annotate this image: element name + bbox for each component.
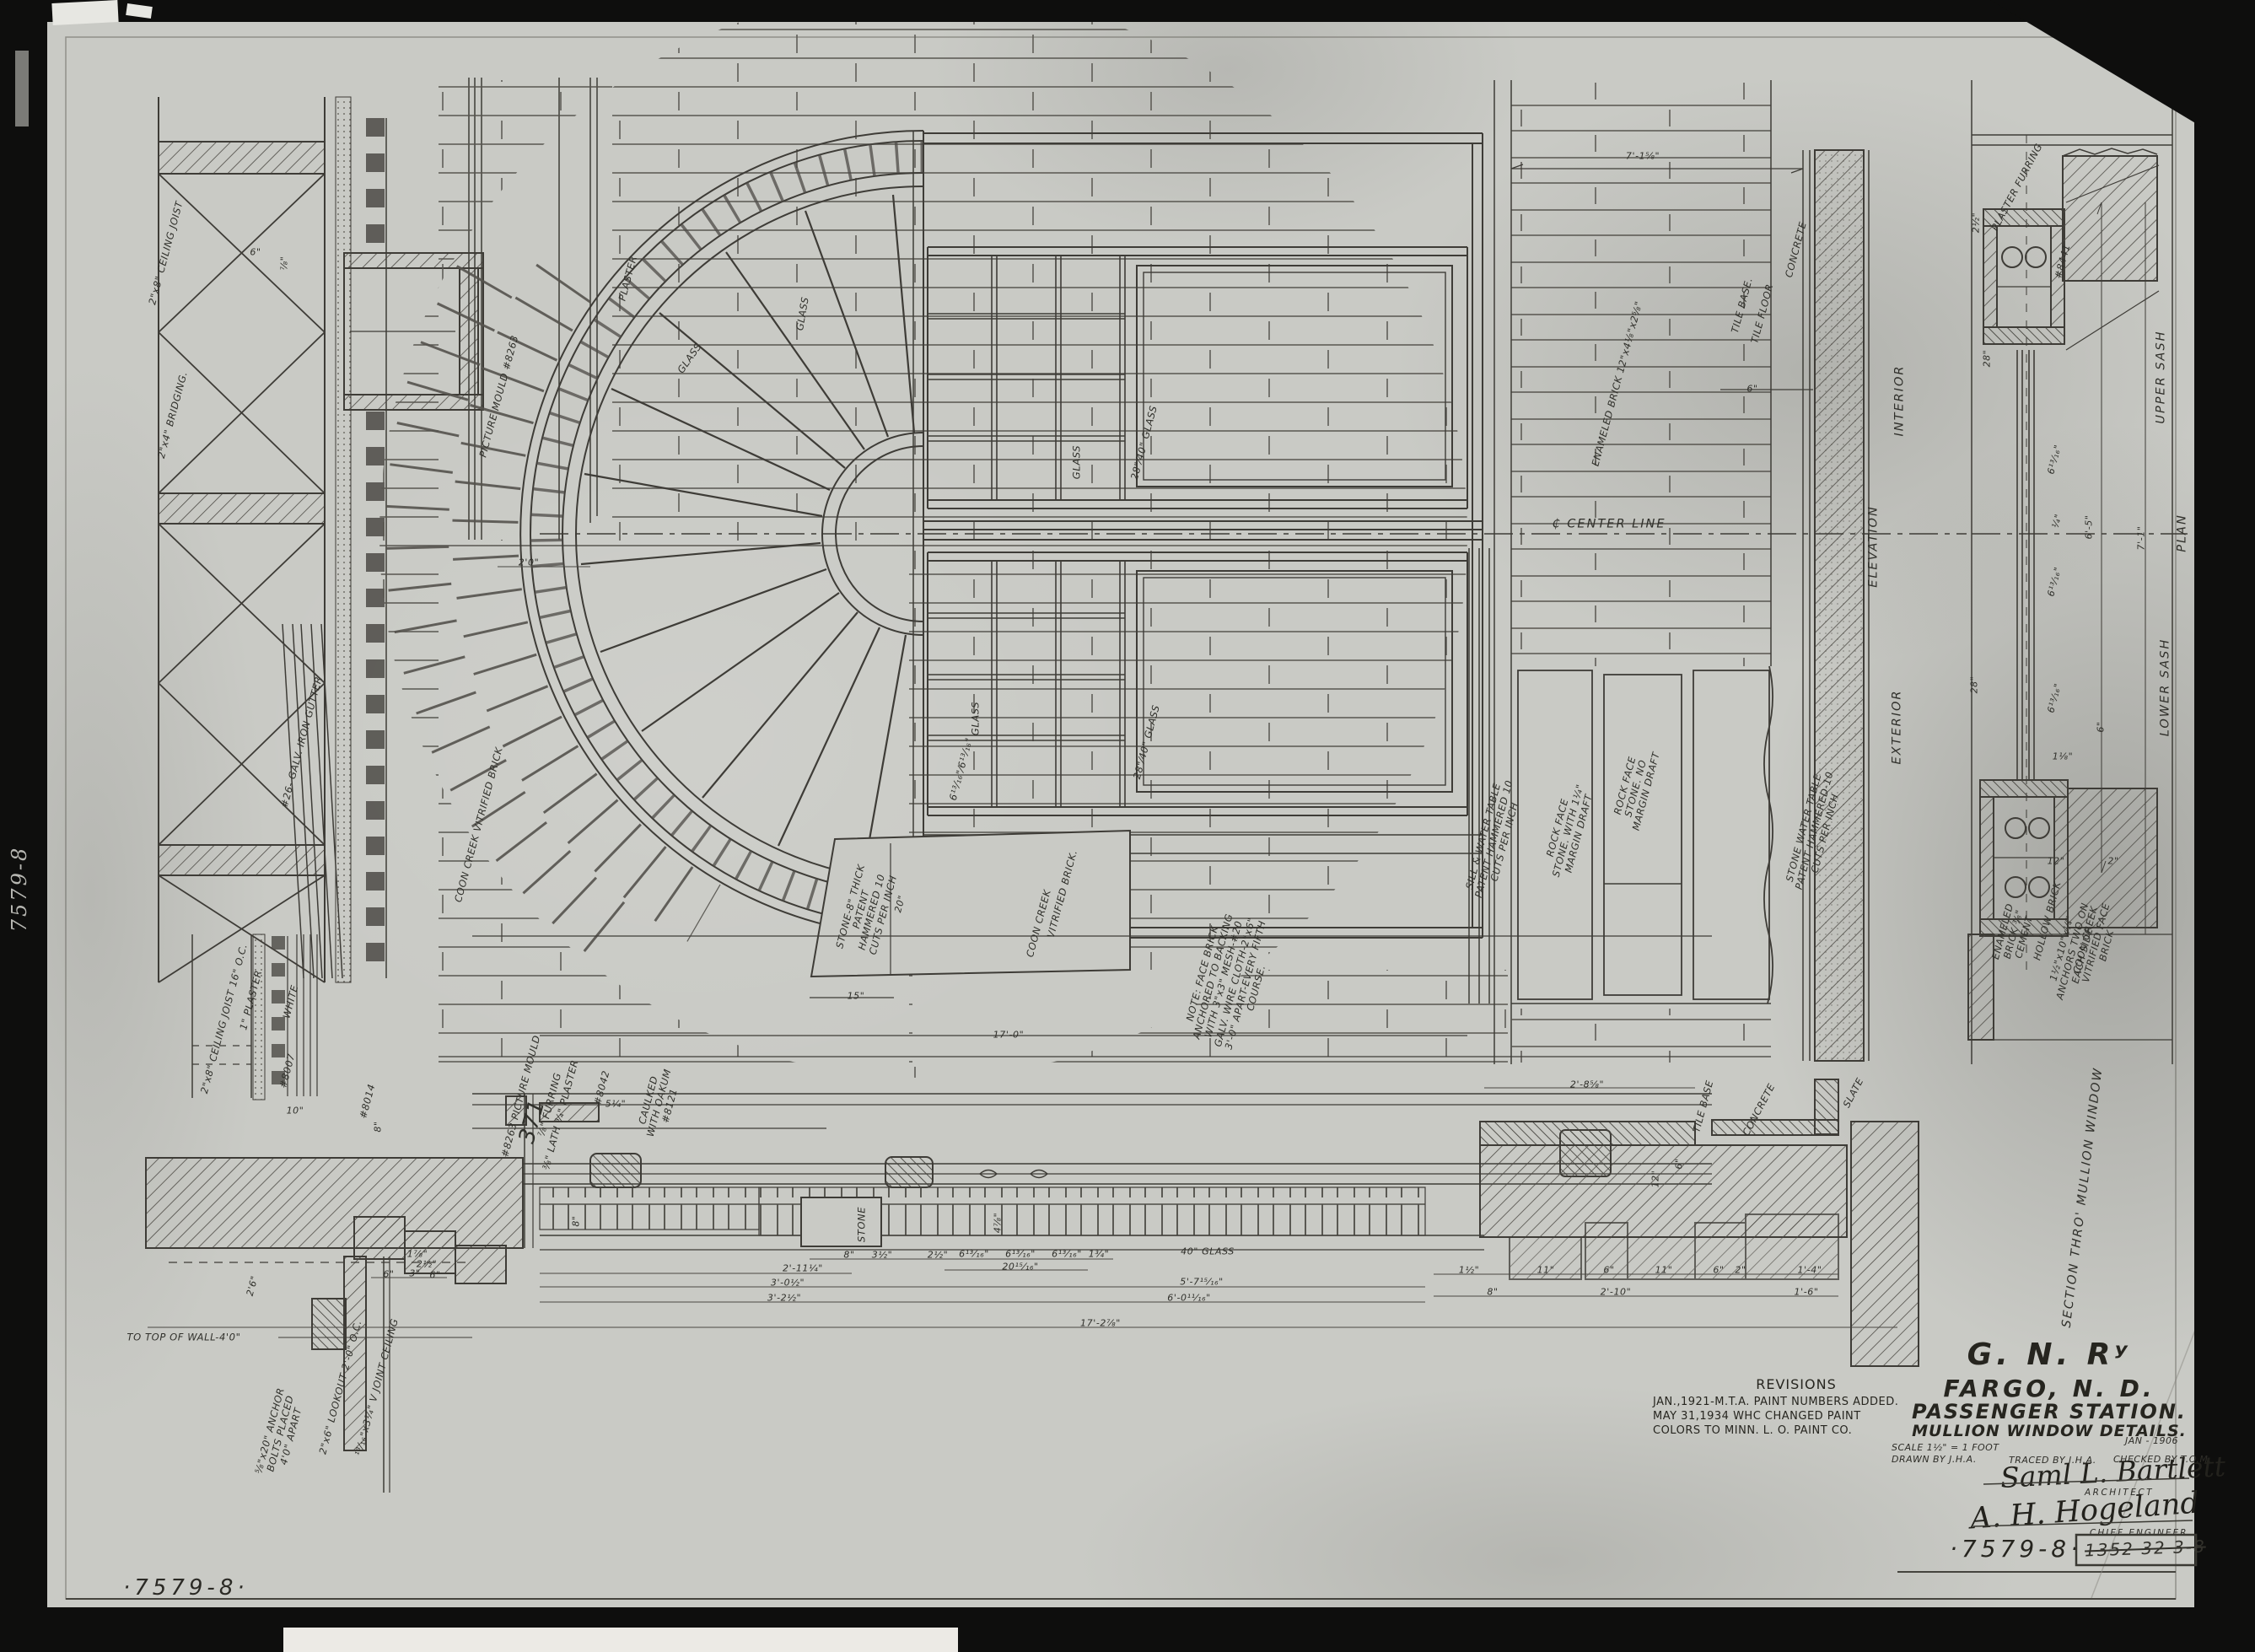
dimension-label: 15" <box>848 992 865 1003</box>
annotation-label: ₵ CENTER LINE <box>1552 518 1666 532</box>
railway-name: G. N. Rʸ <box>1914 1337 2184 1372</box>
annotation-label: SECTION THRO' MULLION WINDOW <box>2060 1067 2106 1329</box>
dimension-label: 6¹³⁄₁₆" <box>2046 566 2064 598</box>
dimension-label: 11" <box>1655 1266 1673 1277</box>
dimension-label: 1'-4" <box>1797 1266 1822 1277</box>
annotation-label: ENAMELED BRICK 12"x4⅛"x2⅝" <box>1590 300 1644 468</box>
annotation-label: COON CREEK VITRIFIED BRICK <box>453 746 505 904</box>
corner-drawing-number: ·7579-8· <box>123 1575 249 1601</box>
dimension-label: 1¾" <box>1089 1250 1110 1261</box>
annotation-label: CAULKED WITH OAKUM #8121 <box>633 1060 686 1146</box>
scale-note: SCALE 1½" = 1 FOOT <box>1892 1442 1999 1453</box>
dimension-label: 8" <box>1487 1288 1498 1299</box>
dimension-label: 3'-0½" <box>771 1278 805 1289</box>
annotation-label: 2"x4" BRIDGING. <box>156 370 190 460</box>
annotation-label: SLATE <box>1841 1076 1866 1110</box>
annotation-label: 28"⁄40" GLASS <box>1132 704 1162 781</box>
drawing-date: JAN - 1906 <box>2125 1435 2178 1446</box>
annotation-label: NOTE: FACE BRICK ANCHORED TO BACKING WIT… <box>1179 905 1279 1057</box>
dimension-label: ⅞" <box>280 256 291 271</box>
annotation-label: STONE WATER TABLE PATENT HAMMERED-10 CUT… <box>1782 765 1847 896</box>
dimension-label: 3'-2½" <box>767 1294 801 1305</box>
dimension-label: 12" <box>2048 857 2065 868</box>
annotation-label: ⅝"x20" ANCHOR BOLTS PLACED 4'0" APART <box>253 1385 309 1483</box>
annotation-label: PLAN <box>2176 514 2190 552</box>
annotation-label: PICTURE MOULD #8263 <box>477 334 520 459</box>
dimension-label: 40" GLASS <box>1181 1247 1235 1258</box>
dimension-label: 2'-11¼" <box>783 1264 823 1275</box>
dimension-label: 6" <box>1746 385 1757 396</box>
annotation-label: 6¹³⁄₁₆"⁄6¹³⁄₁₆" <box>948 736 976 802</box>
annotation-label: #8007 <box>277 1052 298 1090</box>
dimension-label: 2½" <box>1972 213 1983 234</box>
dimension-label: 1'-6" <box>1794 1288 1818 1299</box>
dimension-label: 8" <box>843 1251 854 1262</box>
annotation-label: EXTERIOR <box>1891 690 1905 765</box>
drawing-number: ·7579-8· <box>1950 1535 2082 1563</box>
dimension-label: 6" <box>383 1270 394 1281</box>
dimension-label: 17'-0" <box>993 1030 1025 1041</box>
revision-entry: JAN.,1921-M.T.A. PAINT NUMBERS ADDED. <box>1653 1396 1940 1410</box>
annotation-label: ¹³⁄₁₆"x3¼" V JOINT CEILING <box>353 1317 401 1457</box>
dimension-label: 6'-0¹¹⁄₁₆" <box>1167 1294 1211 1305</box>
dimension-label: 1⅞" <box>407 1250 428 1261</box>
annotation-label: LOWER SASH <box>2159 638 2173 736</box>
dimension-label: 4⅞" <box>993 1213 1004 1234</box>
annotation-label: WHITE <box>281 984 300 1020</box>
dimension-label: 2'-10" <box>1601 1288 1632 1299</box>
annotation-label: #26- GALV. IRON GUTTER <box>279 675 325 810</box>
dimension-label: 28" <box>1970 676 1981 694</box>
dimension-label: 7'-1⅝" <box>1626 152 1660 163</box>
dimension-label: ¼" <box>2051 513 2065 530</box>
annotation-label: CONCRETE <box>1784 220 1809 278</box>
dimension-label: 2'0" <box>519 558 539 569</box>
dimension-label: 1⅛" <box>2053 752 2074 763</box>
dimension-label: 5¼" <box>605 1100 627 1111</box>
annotation-label: #8441 <box>2053 243 2073 280</box>
dimension-label: 6" <box>2096 721 2107 732</box>
annotation-label: TO TOP OF WALL-4'0" <box>127 1332 241 1343</box>
annotation-label: 2"x8" CEILING JOIST <box>147 200 186 306</box>
dimension-label: 12" <box>1651 1170 1662 1188</box>
revisions-heading: REVISIONS <box>1653 1376 1940 1392</box>
annotation-label: ROCK FACE STONE. NO MARGIN DRAFT <box>1606 735 1665 842</box>
dimension-label: 3" <box>409 1269 420 1280</box>
annotation-label: 1" PLASTER <box>238 969 265 1031</box>
annotation-label: SILL & WATER TABLE PATENT HAMMERED 10 CU… <box>1462 774 1527 903</box>
dimension-label: 17'-2⅞" <box>1080 1319 1121 1330</box>
dimension-label: 10" <box>287 1106 304 1117</box>
revision-entry: COLORS TO MINN. L. O. PAINT CO. <box>1653 1424 1940 1439</box>
annotation-label: TILE FLOOR <box>1749 283 1776 344</box>
annotation-label: GLASS <box>675 342 704 376</box>
dimension-label: 20¹⁵⁄₁₆" <box>1002 1262 1038 1273</box>
dimension-label: 6" <box>1603 1266 1614 1277</box>
annotation-label: STONE-8" THICK PATENT HAMMERED 10 CUTS P… <box>832 856 901 966</box>
dimension-label: 6¹³⁄₁₆" <box>2046 444 2064 476</box>
dimension-label: 2" <box>1735 1266 1746 1277</box>
revisions-block: REVISIONS JAN.,1921-M.T.A. PAINT NUMBERS… <box>1653 1376 1940 1439</box>
annotation-label: UPPER SASH <box>2155 330 2169 423</box>
dimension-label: 6¹³⁄₁₆" <box>959 1250 989 1261</box>
dimension-label: 6" <box>250 248 261 259</box>
dimension-label: 6" <box>1675 1158 1686 1169</box>
dimension-label: 2'-8⅝" <box>1570 1080 1604 1091</box>
annotation-label: GLASS <box>970 702 981 735</box>
dimension-label: 7'-1" <box>2137 525 2148 550</box>
annotation-label: PLASTER FURRING <box>1989 142 2045 233</box>
annotation-label: TILE BASE <box>1691 1079 1715 1134</box>
annotation-label: CONCRETE <box>1741 1082 1778 1138</box>
dimension-label: 28" <box>1983 350 1994 368</box>
annotation-label: 28"⁄40" GLASS <box>1129 405 1160 482</box>
dimension-label: 1½" <box>1459 1266 1480 1277</box>
dimension-label: 6" <box>1713 1266 1724 1277</box>
drawing-title: PASSENGER STATION. <box>1897 1400 2201 1423</box>
annotation-label: PLASTER <box>616 255 639 303</box>
dimension-label: 3½" <box>872 1251 893 1262</box>
dimension-label: 20" <box>893 894 908 913</box>
dimension-label: 6¹³⁄₁₆" <box>1005 1250 1036 1261</box>
blueprint-scan: { "title_block": { "railway": "G. N. Rʸ"… <box>0 0 2255 1652</box>
annotation-label: TILE BASE. <box>1730 277 1755 335</box>
revision-entry: MAY 31,1934 WHC CHANGED PAINT <box>1653 1410 1940 1424</box>
dimension-label: 6'-5" <box>2085 514 2096 539</box>
dimension-label: 2" <box>2107 857 2118 868</box>
annotation-label: INTERIOR <box>1893 365 1908 437</box>
dimension-label: 2½" <box>928 1251 949 1262</box>
drawn-by: DRAWN BY J.H.A. <box>1892 1454 1977 1465</box>
file-number: 1352 32 3-8 <box>2085 1536 2206 1560</box>
dimension-label: 11" <box>1537 1266 1555 1277</box>
annotation-label: #8014 <box>358 1083 378 1120</box>
annotation-label: ELEVATION <box>1867 505 1881 588</box>
dimension-label: 6" <box>429 1271 440 1282</box>
dimension-label: 5'-7¹⁵⁄₁₆" <box>1180 1278 1224 1289</box>
drawing-location: FARGO, N. D. <box>1906 1375 2193 1402</box>
annotation-label: GLASS <box>1071 445 1082 479</box>
dimension-label: 6¹³⁄₁₆" <box>1052 1250 1082 1261</box>
annotation-label: STONE <box>856 1207 867 1242</box>
annotation-label: ENAMELED BRICK ⅜" CEMENT <box>1988 893 2040 975</box>
annotation-label: ROCK FACE STONE. WITH 1¼" MARGIN DRAFT <box>1539 778 1597 884</box>
dimension-label: 2'6" <box>245 1275 261 1298</box>
dimension-label: 6¹³⁄₁₆" <box>2046 682 2064 714</box>
dimension-label: 8" <box>374 1121 385 1132</box>
dimension-label: 8" <box>572 1215 583 1226</box>
annotation-label: GLASS <box>794 296 811 331</box>
